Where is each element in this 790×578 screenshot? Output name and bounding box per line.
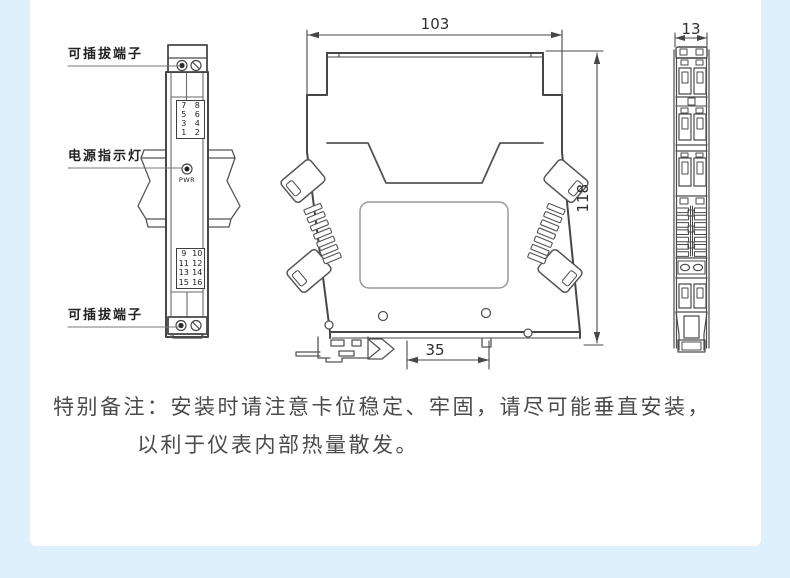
side-view-drawing bbox=[279, 30, 603, 369]
special-note-line1: 特别备注：安装时请注意卡位稳定、牢固，请尽可能垂直安装， bbox=[53, 396, 711, 419]
top-terminal-block bbox=[168, 45, 207, 72]
side-view-outline bbox=[307, 53, 580, 338]
pwr-led-label: PWR bbox=[176, 177, 198, 184]
terminal-number: 1 bbox=[177, 129, 191, 138]
terminal-block-upper-left bbox=[279, 158, 326, 204]
technical-drawing bbox=[0, 0, 790, 578]
label-power-indicator: 电源指示灯 bbox=[68, 150, 143, 164]
label-pluggable-terminal-bottom: 可插拔端子 bbox=[68, 309, 143, 323]
profile-view-drawing bbox=[674, 33, 709, 352]
terminal-number: 12 bbox=[191, 259, 205, 269]
terminal-number: 8 bbox=[191, 101, 205, 110]
profile-terminal-module-1 bbox=[676, 58, 707, 97]
terminal-number: 16 bbox=[191, 278, 205, 288]
special-note-line2: 以利于仪表内部热量散发。 bbox=[137, 434, 419, 457]
dim-body-width: 103 bbox=[413, 16, 457, 33]
dim-width-lines bbox=[307, 30, 562, 95]
terminal-block-lower-left bbox=[285, 248, 332, 294]
profile-terminal-module-3 bbox=[676, 153, 707, 204]
terminal-number: 9 bbox=[177, 249, 191, 259]
terminal-number: 15 bbox=[177, 278, 191, 288]
terminal-number: 11 bbox=[177, 259, 191, 269]
profile-terminal-module-4 bbox=[676, 284, 707, 312]
profile-bottom-foot bbox=[676, 312, 707, 352]
front-view-drawing bbox=[68, 45, 240, 338]
terminal-number: 10 bbox=[191, 249, 205, 259]
rail-clip bbox=[296, 337, 491, 362]
terminal-number: 13 bbox=[177, 269, 191, 279]
terminal-number: 2 bbox=[191, 129, 205, 138]
top-terminal-numbers: 7 8 5 6 3 4 1 2 bbox=[176, 100, 205, 139]
terminal-number: 14 bbox=[191, 269, 205, 279]
terminal-number: 5 bbox=[177, 110, 191, 119]
dim-body-height: 118 bbox=[575, 176, 592, 220]
profile-top-cap bbox=[676, 47, 707, 58]
profile-comb-section bbox=[677, 206, 707, 256]
terminal-number: 4 bbox=[191, 120, 205, 129]
terminal-number: 6 bbox=[191, 110, 205, 119]
label-area bbox=[360, 202, 508, 288]
power-led bbox=[182, 164, 192, 174]
profile-oval-band bbox=[676, 258, 707, 278]
terminal-number: 3 bbox=[177, 120, 191, 129]
dim-body-depth: 13 bbox=[675, 21, 707, 38]
profile-terminal-module-2 bbox=[676, 108, 707, 151]
bottom-terminal-numbers: 9 10 11 12 13 14 15 16 bbox=[176, 248, 205, 289]
dim-rail-width: 35 bbox=[417, 342, 453, 359]
terminal-number: 7 bbox=[177, 101, 191, 110]
profile-divider bbox=[676, 98, 707, 106]
label-pluggable-terminal-top: 可插拔端子 bbox=[68, 48, 143, 62]
